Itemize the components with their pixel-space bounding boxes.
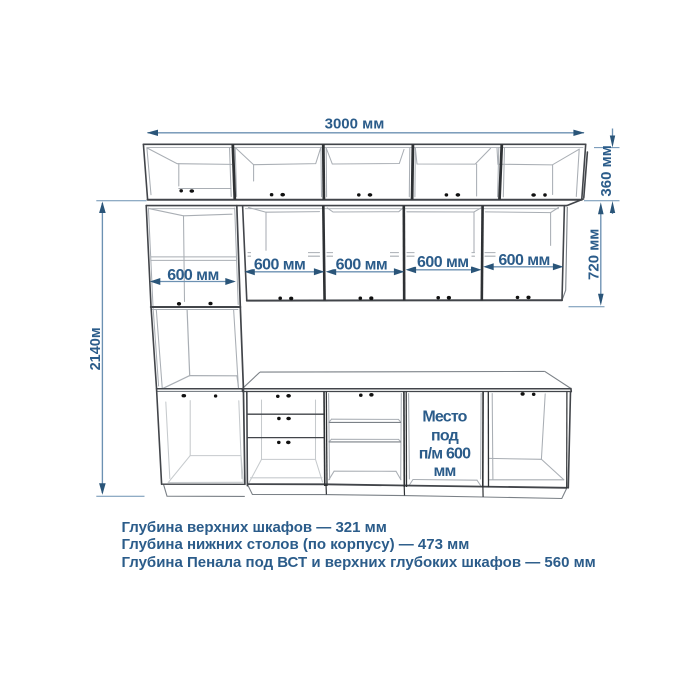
svg-text:Место: Место xyxy=(422,409,467,426)
svg-text:600 мм: 600 мм xyxy=(498,252,550,269)
svg-text:3000 мм: 3000 мм xyxy=(325,115,385,132)
svg-text:п/м 600: п/м 600 xyxy=(419,446,471,463)
svg-text:720 мм: 720 мм xyxy=(586,229,603,280)
svg-text:600 мм: 600 мм xyxy=(167,267,219,284)
svg-text:мм: мм xyxy=(433,463,455,480)
svg-text:600 мм: 600 мм xyxy=(417,254,469,271)
svg-text:600 мм: 600 мм xyxy=(336,256,388,273)
svg-text:под: под xyxy=(431,428,459,445)
svg-text:2140м: 2140м xyxy=(88,327,104,370)
svg-text:360 мм: 360 мм xyxy=(598,145,615,196)
svg-text:600 мм: 600 мм xyxy=(254,256,306,273)
